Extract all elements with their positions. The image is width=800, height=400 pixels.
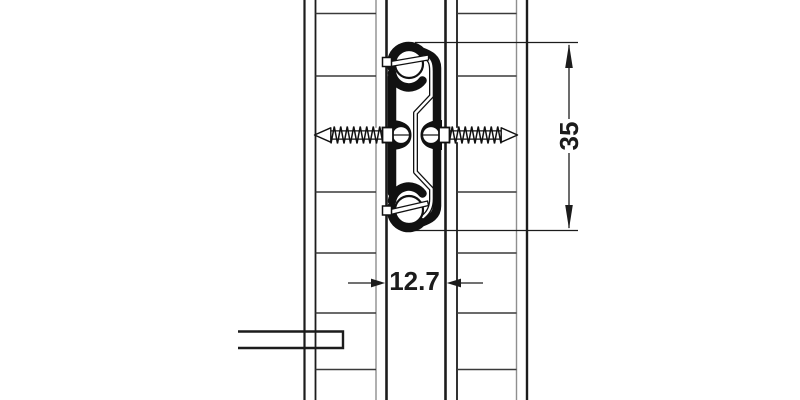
arrowhead-down-icon (565, 205, 573, 229)
dimension-12-7: 12.7 (348, 266, 483, 296)
screw-head (383, 128, 394, 143)
bottom-lever-cap (383, 206, 392, 215)
right-panel-core-rungs (457, 14, 517, 370)
screw-head (439, 128, 450, 143)
drawing-canvas: 35 12.7 (0, 0, 800, 400)
screw-tip (315, 128, 331, 142)
left-panel-core-rungs (316, 14, 377, 370)
bottom-rail-bar (238, 332, 343, 349)
arrowhead-right-icon (371, 279, 385, 288)
dimension-12-7-label: 12.7 (389, 266, 440, 296)
top-lever-cap (383, 58, 392, 67)
arrowhead-left-icon (447, 279, 461, 288)
screw-tip (501, 128, 517, 142)
drawer-slide-technical-drawing: 35 12.7 (0, 0, 800, 400)
dimension-35-label: 35 (554, 122, 584, 151)
right-panel-section (446, 0, 528, 400)
right-mounting-screw (439, 127, 518, 144)
left-mounting-screw (315, 127, 394, 144)
left-panel-section (305, 0, 387, 400)
arrowhead-up-icon (565, 44, 573, 68)
